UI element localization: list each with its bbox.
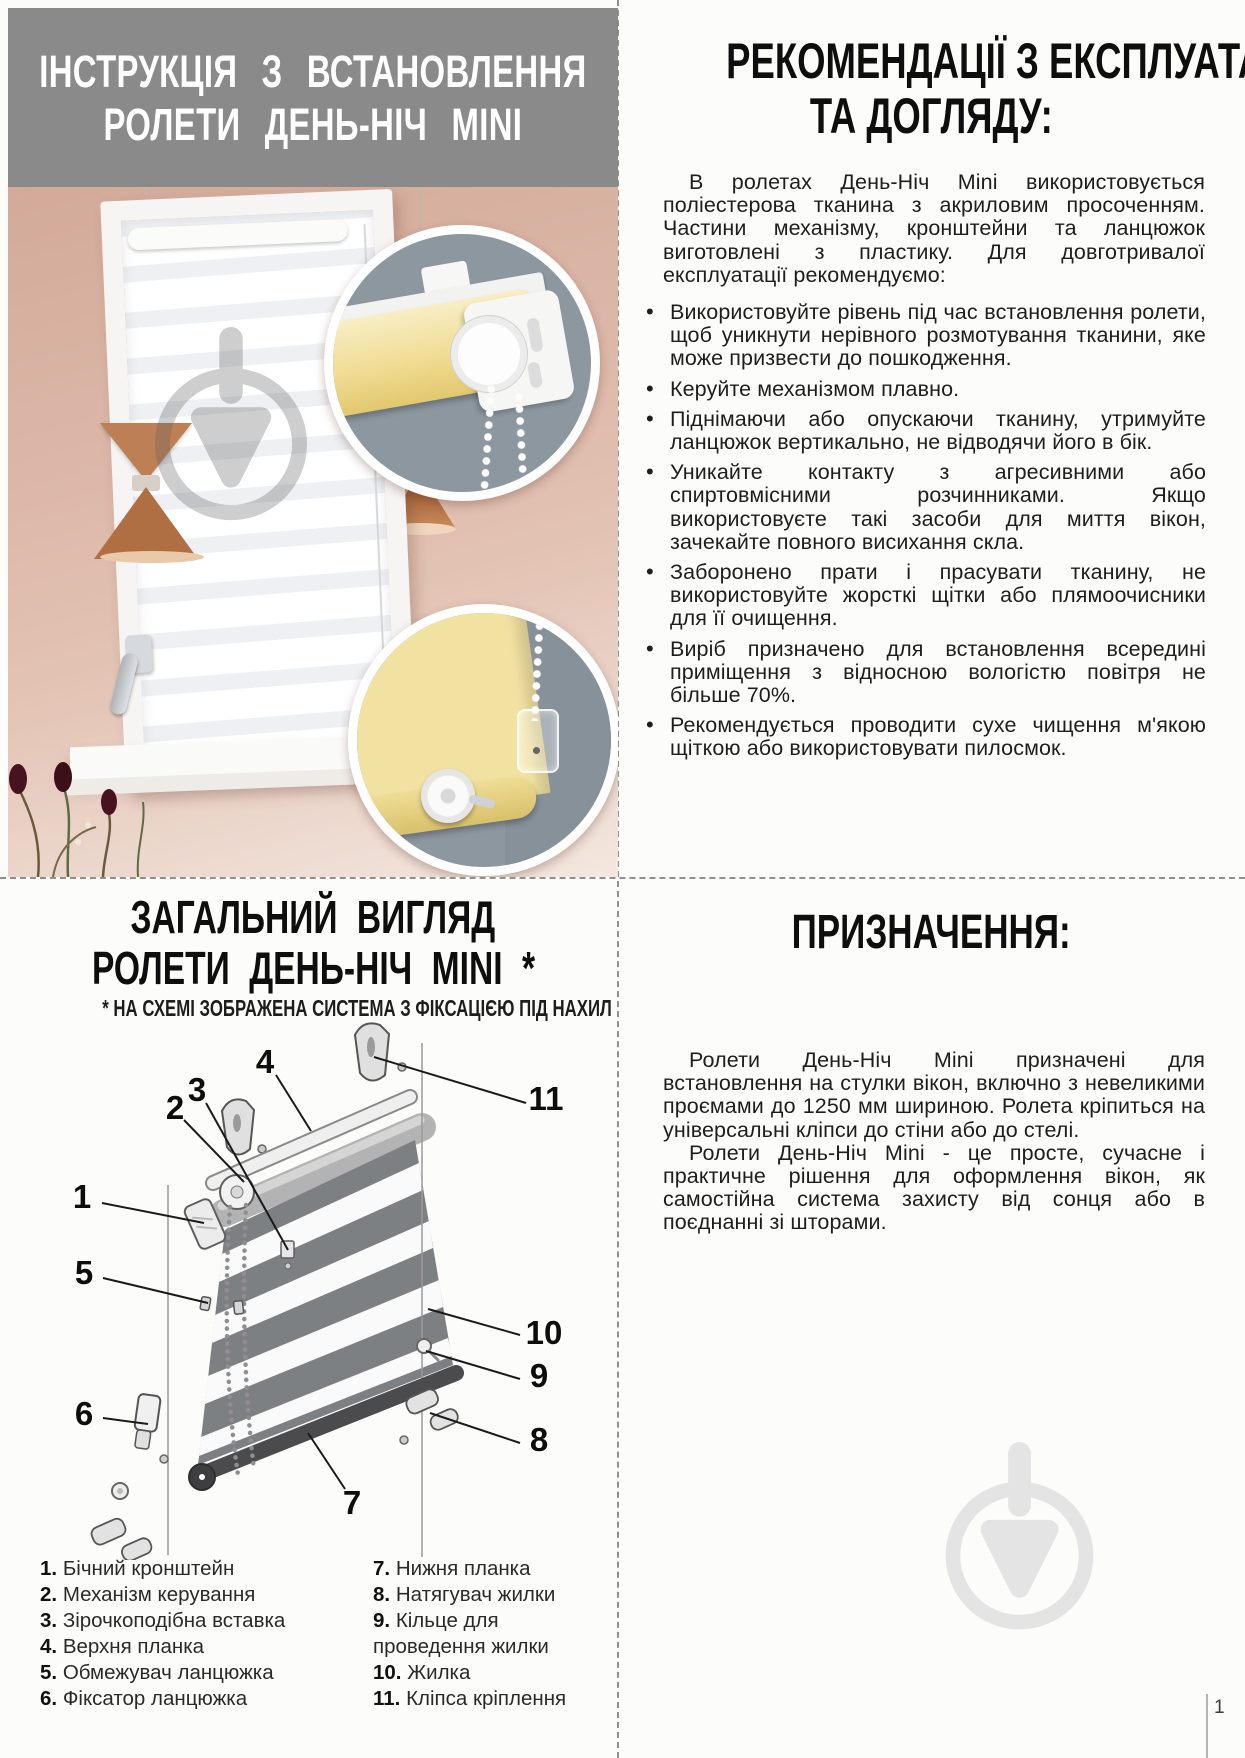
- diagram-callout-1: 1: [73, 1178, 91, 1216]
- recommendations-heading-line1: РЕКОМЕНДАЦІЇ З ЕКСПЛУАТАЦІЇ: [726, 34, 1245, 89]
- diagram-callout-7: 7: [343, 1484, 361, 1522]
- recommendation-item: Виріб призначено для встановлення всеред…: [640, 638, 1206, 708]
- pendant-lamp-left-rim: [100, 551, 204, 563]
- recommendation-item: Керуйте механізмом плавно.: [640, 378, 1206, 401]
- diagram-callout-4: 4: [256, 1043, 274, 1081]
- chain-fixator-clear: [517, 709, 559, 773]
- bead-chain: [514, 392, 529, 501]
- inset-photo-tensioner: [348, 604, 618, 876]
- page-number-divider: [1206, 1694, 1208, 1758]
- diagram-callout-11: 11: [529, 1080, 564, 1118]
- brand-logo-icon: [937, 1442, 1102, 1640]
- legend-item: 10. Жилка: [373, 1660, 578, 1686]
- tensioner-part: [428, 1407, 460, 1432]
- diagram-callout-10: 10: [526, 1314, 563, 1352]
- mechanism-disc: [451, 316, 527, 392]
- install-title-banner: ІНСТРУКЦІЯ З ВСТАНОВЛЕННЯ РОЛЕТИ ДЕНЬ-НІ…: [8, 8, 618, 187]
- roller-blind-diagram: [8, 935, 618, 1560]
- recommendation-item: Уникайте контакту з агресивними або спир…: [640, 461, 1206, 554]
- brand-watermark-icon: [146, 327, 316, 531]
- legend-item: 4. Верхня планка: [40, 1634, 340, 1660]
- mounting-clip-right: [355, 1023, 389, 1080]
- recommendation-item: Заборонено прати і прасувати тканину, не…: [640, 561, 1206, 631]
- diagram-callout-2: 2: [166, 1089, 184, 1127]
- chain-limiter: [200, 1296, 211, 1310]
- screw: [160, 1455, 168, 1463]
- diagram-legend-left: 1. Бічний кронштейн 2. Механізм керуванн…: [40, 1556, 340, 1712]
- recommendation-item: Використовуйте рівень під час встановлен…: [640, 301, 1206, 371]
- purpose-paragraph: Ролети День-Ніч Mini - це просте, сучасн…: [663, 1142, 1205, 1235]
- purpose-paragraph: Ролети День-Ніч Mini призначені для вста…: [663, 1049, 1205, 1142]
- wire-guide-ring: [421, 769, 475, 823]
- blind-cassette: [127, 219, 348, 251]
- diagram-legend-right: 7. Нижня планка 8. Натягувач жилки 9. Кі…: [373, 1556, 578, 1712]
- diagram-callout-5: 5: [75, 1254, 93, 1292]
- recommendation-item: Піднімаючи або опускаючи тканину, утриму…: [640, 408, 1206, 454]
- recommendations-list: Використовуйте рівень під час встановлен…: [640, 301, 1206, 768]
- diagram-callout-9: 9: [530, 1357, 548, 1395]
- diagram-callout-6: 6: [75, 1395, 93, 1433]
- horizontal-dashed-divider: [0, 877, 1245, 879]
- recommendation-item: Рекомендується проводити сухе чищення м'…: [640, 714, 1206, 760]
- page-number: 1: [1214, 1697, 1225, 1719]
- recommendations-heading-line2: ТА ДОГЛЯДУ:: [810, 89, 1053, 144]
- fixator-screw: [533, 747, 540, 754]
- legend-item: 1. Бічний кронштейн: [40, 1556, 340, 1582]
- legend-item: 8. Натягувач жилки: [373, 1582, 578, 1608]
- install-title-line2: РОЛЕТИ ДЕНЬ-НІЧ MINI: [26, 98, 600, 151]
- legend-item: 9. Кільце для проведення жилки: [373, 1608, 578, 1660]
- legend-item: 2. Механізм керування: [40, 1582, 340, 1608]
- tulip-plant: [8, 747, 188, 877]
- diagram-callout-8: 8: [530, 1421, 548, 1459]
- tensioner-part: [89, 1517, 127, 1547]
- legend-item: 11. Кліпса кріплення: [373, 1686, 578, 1712]
- purpose-heading: ПРИЗНАЧЕННЯ:: [618, 906, 1245, 960]
- mounting-clip-left: [222, 1099, 254, 1154]
- recommendations-heading: РЕКОМЕНДАЦІЇ З ЕКСПЛУАТАЦІЇ ТА ДОГЛЯДУ:: [618, 34, 1245, 144]
- diagram-callout-3: 3: [188, 1071, 206, 1109]
- legend-item: 7. Нижня планка: [373, 1556, 578, 1582]
- window-photo: [8, 187, 618, 877]
- legend-item: 3. Зірочкоподібна вставка: [40, 1608, 340, 1634]
- instruction-page: ІНСТРУКЦІЯ З ВСТАНОВЛЕННЯ РОЛЕТИ ДЕНЬ-НІ…: [0, 0, 1245, 1758]
- purpose-text: Ролети День-Ніч Mini призначені для вста…: [663, 1049, 1205, 1235]
- legend-item: 5. Обмежувач ланцюжка: [40, 1660, 340, 1686]
- screw: [400, 1436, 408, 1444]
- legend-item: 6. Фіксатор ланцюжка: [40, 1686, 340, 1712]
- inset-photo-mechanism: [324, 225, 600, 501]
- chain-limiter: [233, 1301, 243, 1315]
- recommendations-intro: В ролетах День-Ніч Mini використовується…: [663, 171, 1205, 287]
- install-title-line1: ІНСТРУКЦІЯ З ВСТАНОВЛЕННЯ: [0, 45, 688, 98]
